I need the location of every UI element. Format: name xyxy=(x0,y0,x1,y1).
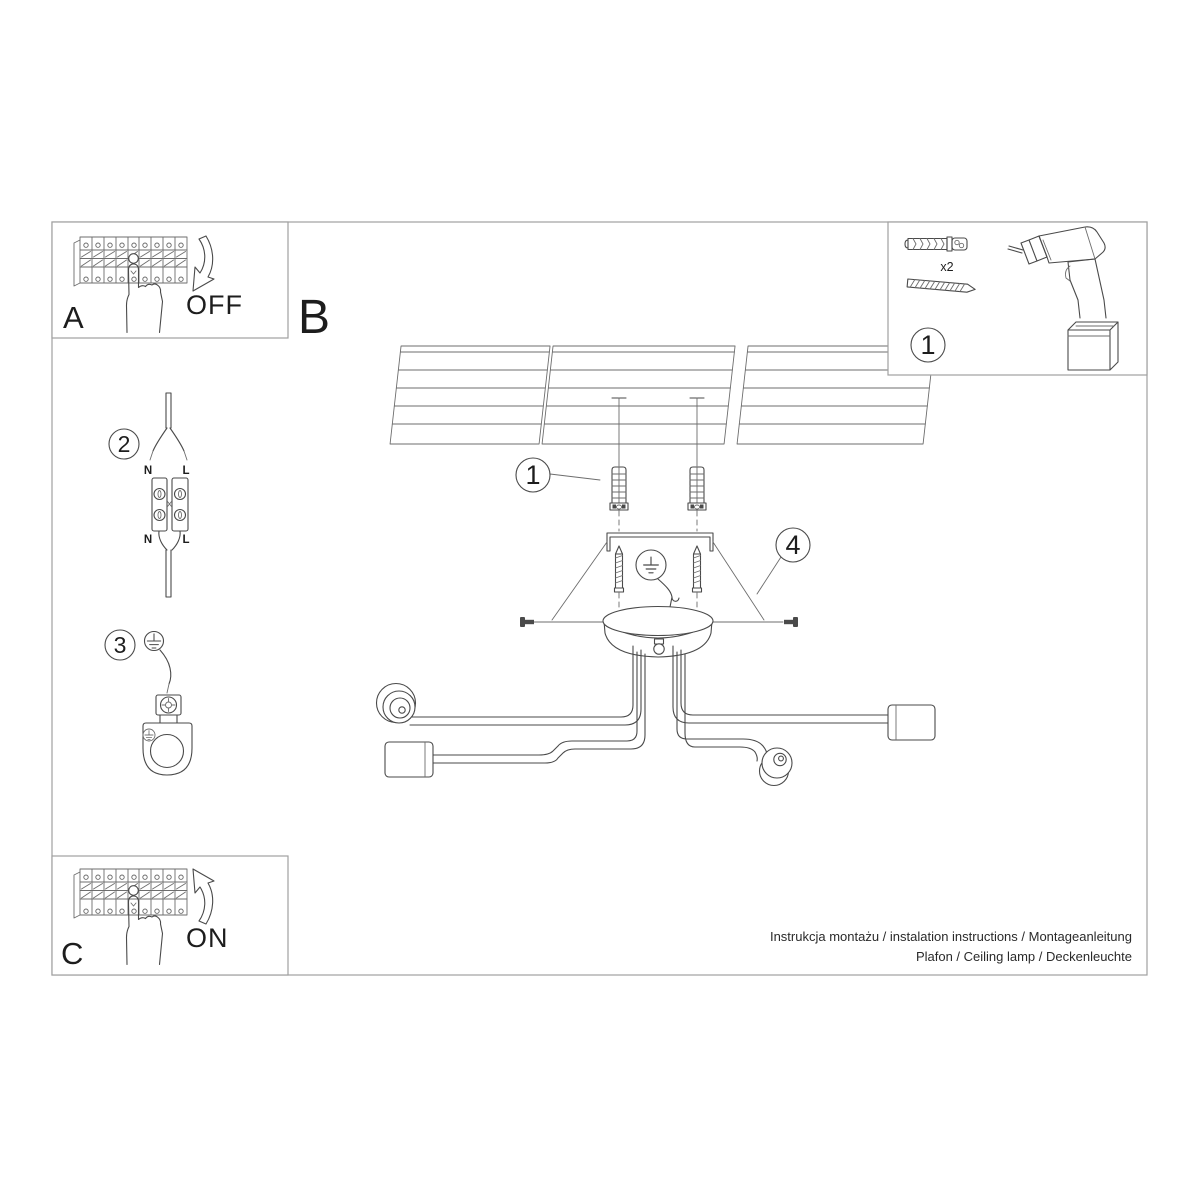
section-a-power-off: A OFF xyxy=(52,222,288,338)
wire-label-n-bottom: N xyxy=(144,534,152,546)
mounting-screw-icon xyxy=(615,546,624,592)
section-c-frame xyxy=(52,856,288,975)
wall-plug-icon xyxy=(610,467,628,510)
installation-instructions-page: A OFF C ON 2 N L N L 3 xyxy=(0,0,1200,1200)
footer-captions: Instrukcja montażu / instalation instruc… xyxy=(770,929,1132,964)
dowel-quantity-label: x2 xyxy=(940,260,953,274)
side-screw-icon xyxy=(784,617,798,627)
section-a-letter: A xyxy=(63,300,84,335)
socket-lower-left xyxy=(385,742,433,777)
step-2-wiring-diagram: 2 N L N L xyxy=(109,393,190,597)
socket-lower-right xyxy=(760,748,793,786)
socket-upper-right xyxy=(888,705,935,740)
off-label: OFF xyxy=(186,290,243,320)
section-c-power-on: C ON xyxy=(52,856,288,975)
terminal-block-left xyxy=(152,478,167,531)
on-label: ON xyxy=(186,923,229,953)
section-b-letter: B xyxy=(298,291,330,344)
step-3-ground-diagram: 3 xyxy=(105,630,192,775)
wire-label-l-bottom: L xyxy=(182,534,189,546)
callout-1-number: 1 xyxy=(920,330,935,360)
wire-label-l-top: L xyxy=(182,465,189,477)
terminal-block-right xyxy=(172,478,188,531)
mounting-screw-icon xyxy=(693,546,702,592)
step-3-number: 3 xyxy=(114,632,127,658)
section-a-frame xyxy=(52,222,288,338)
socket-upper-left xyxy=(377,684,416,724)
canopy-nipple xyxy=(655,639,664,644)
terminal-neck xyxy=(160,715,177,723)
section-c-letter: C xyxy=(61,936,83,971)
earth-wire xyxy=(658,579,679,607)
callout-1-number: 1 xyxy=(525,460,540,490)
tools-inset: x2 1 xyxy=(888,222,1147,375)
lamp-arms xyxy=(409,639,888,763)
wire-label-n-top: N xyxy=(144,465,152,477)
ground-terminal xyxy=(156,695,181,715)
step-2-number: 2 xyxy=(118,431,131,457)
wall-plug-icon xyxy=(688,467,706,510)
footer-line-1: Instrukcja montażu / instalation instruc… xyxy=(770,929,1132,944)
footer-line-2: Plafon / Ceiling lamp / Deckenleuchte xyxy=(916,949,1132,964)
ceiling-planks xyxy=(390,346,934,444)
section-b-assembly: B 1 4 xyxy=(298,291,935,786)
side-screw-icon xyxy=(520,617,534,627)
mounting-bracket-bar xyxy=(607,533,713,551)
callout-4-number: 4 xyxy=(785,530,800,560)
